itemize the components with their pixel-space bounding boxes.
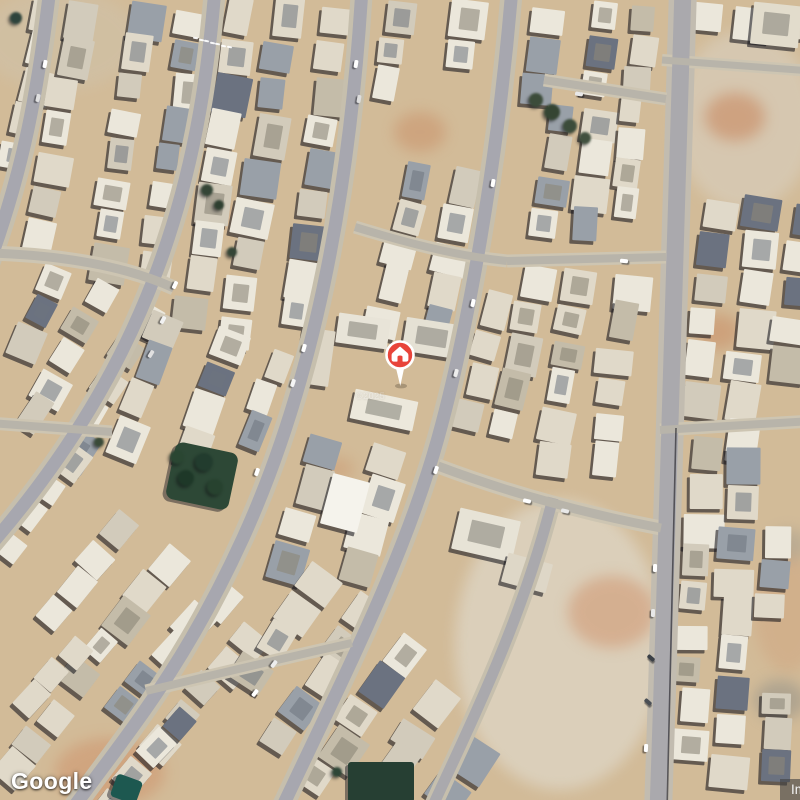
parked-car [353,60,358,69]
imagery-attribution: Imagery ©2025 Airbus, CNES / Airbus, Max… [780,779,800,800]
parked-car [453,369,459,378]
vehicles-layer [0,0,800,800]
parked-car [620,259,628,264]
parked-car [171,281,178,290]
parked-car [651,609,655,617]
attribution-text: Imagery ©2025 Airbus, CNES / Airbus, Max… [791,779,800,800]
road-marking-dash [215,43,220,46]
parked-car [523,498,532,504]
parked-car [575,91,583,96]
parked-car [470,299,476,308]
parked-car [644,698,653,706]
parked-car [301,344,307,353]
road-marking-dash [204,40,209,43]
road-marking-dash [221,44,226,47]
parked-car [35,94,41,103]
road-marking-dash [198,38,203,41]
parked-car [290,379,296,388]
parked-car [356,95,361,104]
road-marking-dash [210,41,215,44]
parked-car [647,654,656,662]
road-marking-dash [193,37,198,40]
parked-car [254,468,260,477]
parked-car [159,316,166,325]
parked-car [653,564,657,572]
road-marking-dash [226,46,231,49]
parked-car [644,744,648,752]
parked-car [251,689,259,698]
satellite-map-canvas[interactable]: ©2025 Google Imagery ©2025 Airbus, CNES … [0,0,800,800]
parked-car [490,179,495,188]
parked-car [561,508,570,514]
parked-car [433,466,439,475]
parked-car [147,350,155,359]
parked-car [42,60,47,69]
parked-car [270,660,278,669]
google-logo[interactable]: Google [11,768,93,795]
imagery-watermark: ©2025 [356,391,385,401]
